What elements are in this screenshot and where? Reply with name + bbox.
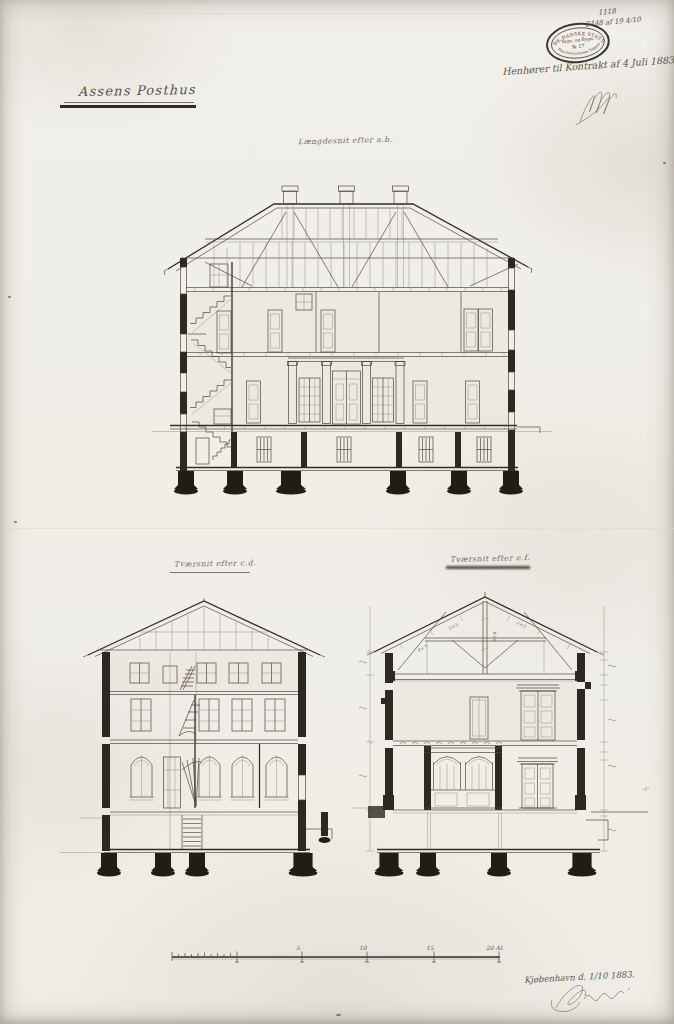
caption-cross-cd: Tværsnit efter c.d. bbox=[174, 558, 256, 568]
chimneys bbox=[282, 186, 409, 287]
counter-screen bbox=[424, 746, 502, 810]
caption-cd-underline bbox=[170, 572, 250, 573]
roof-truss-structure bbox=[205, 209, 518, 287]
cross-section-cd-drawing bbox=[60, 598, 332, 877]
scale-tick-label: 10 bbox=[359, 944, 367, 951]
ground-floor-door bbox=[517, 758, 558, 808]
sheet-linework bbox=[0, 0, 674, 1024]
scale-tick-label: 20 Al. bbox=[486, 944, 504, 951]
foundation-piers bbox=[375, 853, 597, 877]
longitudinal-section-drawing bbox=[152, 186, 552, 495]
truss-note: 8×8 bbox=[492, 631, 497, 641]
scale-bar bbox=[172, 952, 501, 963]
footer-signature-flourish bbox=[551, 985, 630, 1011]
scale-tick-label: 15 bbox=[426, 944, 434, 951]
cross-section-ef-drawing bbox=[352, 592, 650, 877]
drawing-sheet: Assens Posthus 1118 2448 af 19 4/10 DE D… bbox=[0, 0, 674, 1024]
foundation-piers bbox=[97, 853, 317, 877]
caption-ef-underline-smudge bbox=[446, 566, 530, 569]
scale-tick-label: 5 bbox=[296, 944, 300, 951]
foundation-piers bbox=[174, 471, 523, 495]
basement bbox=[176, 432, 518, 471]
